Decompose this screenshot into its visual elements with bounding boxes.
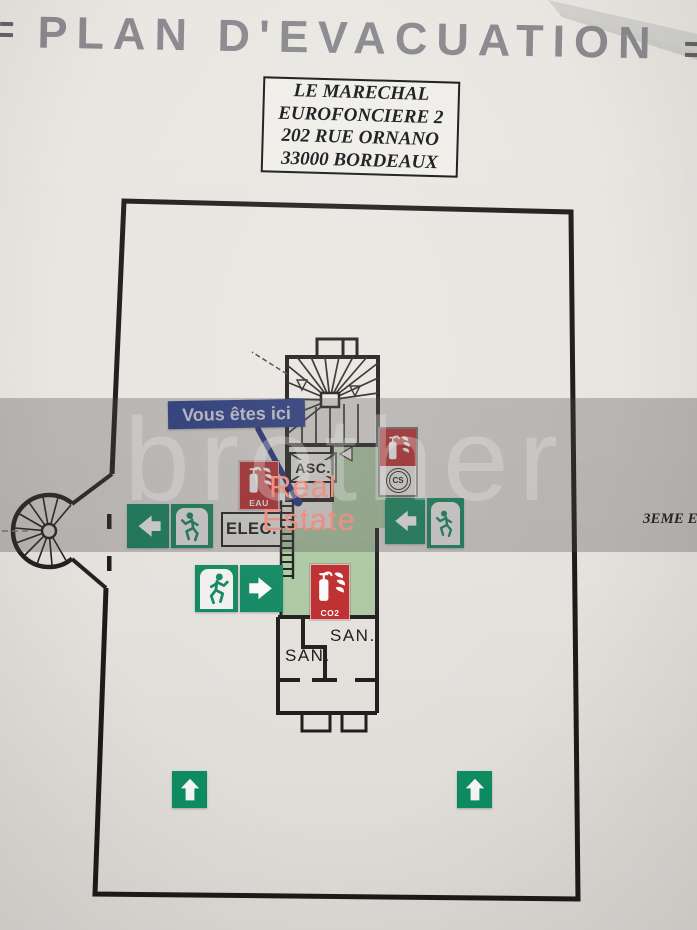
you-are-here-sign: Vous êtes ici	[168, 399, 305, 429]
fire-extinguisher-icon	[242, 462, 277, 498]
door-jamb-marks	[107, 514, 112, 571]
electrical-room-label: ELEC.	[226, 520, 277, 539]
exit-route-sign-left	[127, 504, 213, 548]
exit-arrow-left-icon	[127, 504, 169, 548]
up-arrow-icon	[176, 774, 204, 805]
cs-class-badge: CS	[386, 468, 411, 493]
exit-arrow-left-icon	[385, 498, 425, 544]
cs-class-label: CS	[389, 471, 408, 490]
address-line: 33000 BORDEAUX	[281, 147, 438, 174]
running-man-icon	[427, 498, 464, 548]
title-flourish-left-icon	[0, 22, 13, 44]
running-man-icon	[195, 565, 238, 612]
up-arrow-icon	[461, 774, 489, 805]
running-man-icon	[171, 504, 213, 548]
flames-icon	[334, 572, 344, 592]
spiral-staircase-icon	[2, 474, 112, 588]
extinguisher-eau-label: EAU	[249, 498, 268, 509]
flames-icon	[401, 436, 409, 452]
electrical-room-box: ELEC.	[221, 512, 282, 547]
fire-extinguisher-icon	[382, 431, 414, 464]
you-are-here-label: Vous êtes ici	[182, 403, 291, 426]
sanitary-label-left: SAN.	[285, 646, 331, 666]
lower-annex-outline	[302, 713, 366, 731]
exit-arrow-right-icon	[240, 565, 283, 612]
elevator-box: ASC.	[289, 452, 337, 483]
exit-route-sign-right	[385, 498, 464, 548]
building-address-box: LE MARECHAL EUROFONCIERE 2 202 RUE ORNAN…	[261, 76, 461, 177]
extinguisher-cs-sign: CS	[378, 427, 418, 497]
evacuation-up-arrow-right	[457, 771, 492, 808]
extinguisher-eau-sign: EAU	[239, 461, 279, 510]
evacuation-up-arrow-left	[172, 771, 207, 808]
extinguisher-co2-sign: CO2	[310, 564, 350, 620]
flames-icon	[263, 468, 272, 486]
floor-level-label: 3EME E	[643, 511, 697, 528]
extinguisher-co2-label: CO2	[321, 608, 340, 619]
sanitary-label-right: SAN.	[330, 626, 376, 646]
title-flourish-right-icon	[685, 42, 697, 64]
elevator-label: ASC.	[294, 460, 331, 476]
stairwell	[252, 339, 378, 445]
fire-extinguisher-icon	[313, 565, 348, 608]
exit-route-sign-lower	[195, 565, 283, 612]
